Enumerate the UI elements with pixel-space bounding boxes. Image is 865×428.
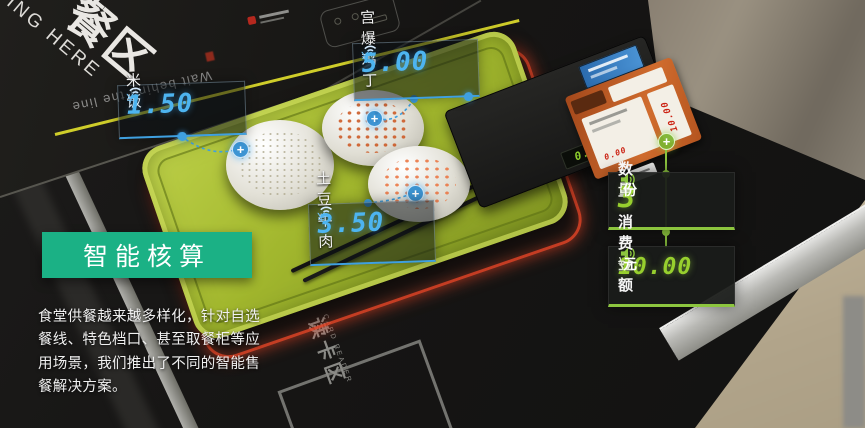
smart-canteen-scene: 餐区 ING HERE Wait behind the line 读卡区 CAR… [0,0,865,428]
wall-strip [843,296,865,428]
dish-price: 1.50 [126,89,194,121]
dish-price: 3.50 [317,208,385,240]
feature-description: 食堂供餐越来越多样化，针对自选 餐线、特色档口、甚至取餐柜等应 用场景，我们推出… [38,306,280,400]
card-reading-zone: 读卡区 CARD READER [277,339,458,428]
smart-accounting-button[interactable]: 智能核算 [42,232,252,278]
amount-panel: 消费金额 ¥10.00元 [608,246,735,307]
dish-price: 5.00 [361,47,429,79]
dish-marker-plus-icon: + [366,110,383,127]
amount-unit: 元 [623,254,637,274]
dish-label-potato-beef: 土豆牛肉 ¥3.50 [308,200,436,266]
dish-label-rice: 米饭 ¥1.50 [117,81,247,139]
quantity-unit: 份 [623,180,637,200]
total-marker-plus-icon: + [658,133,675,150]
dish-marker-plus-icon: + [232,141,249,158]
dish-label-kungpao-chicken: 宫爆鸡丁 ¥5.00 [352,39,480,101]
